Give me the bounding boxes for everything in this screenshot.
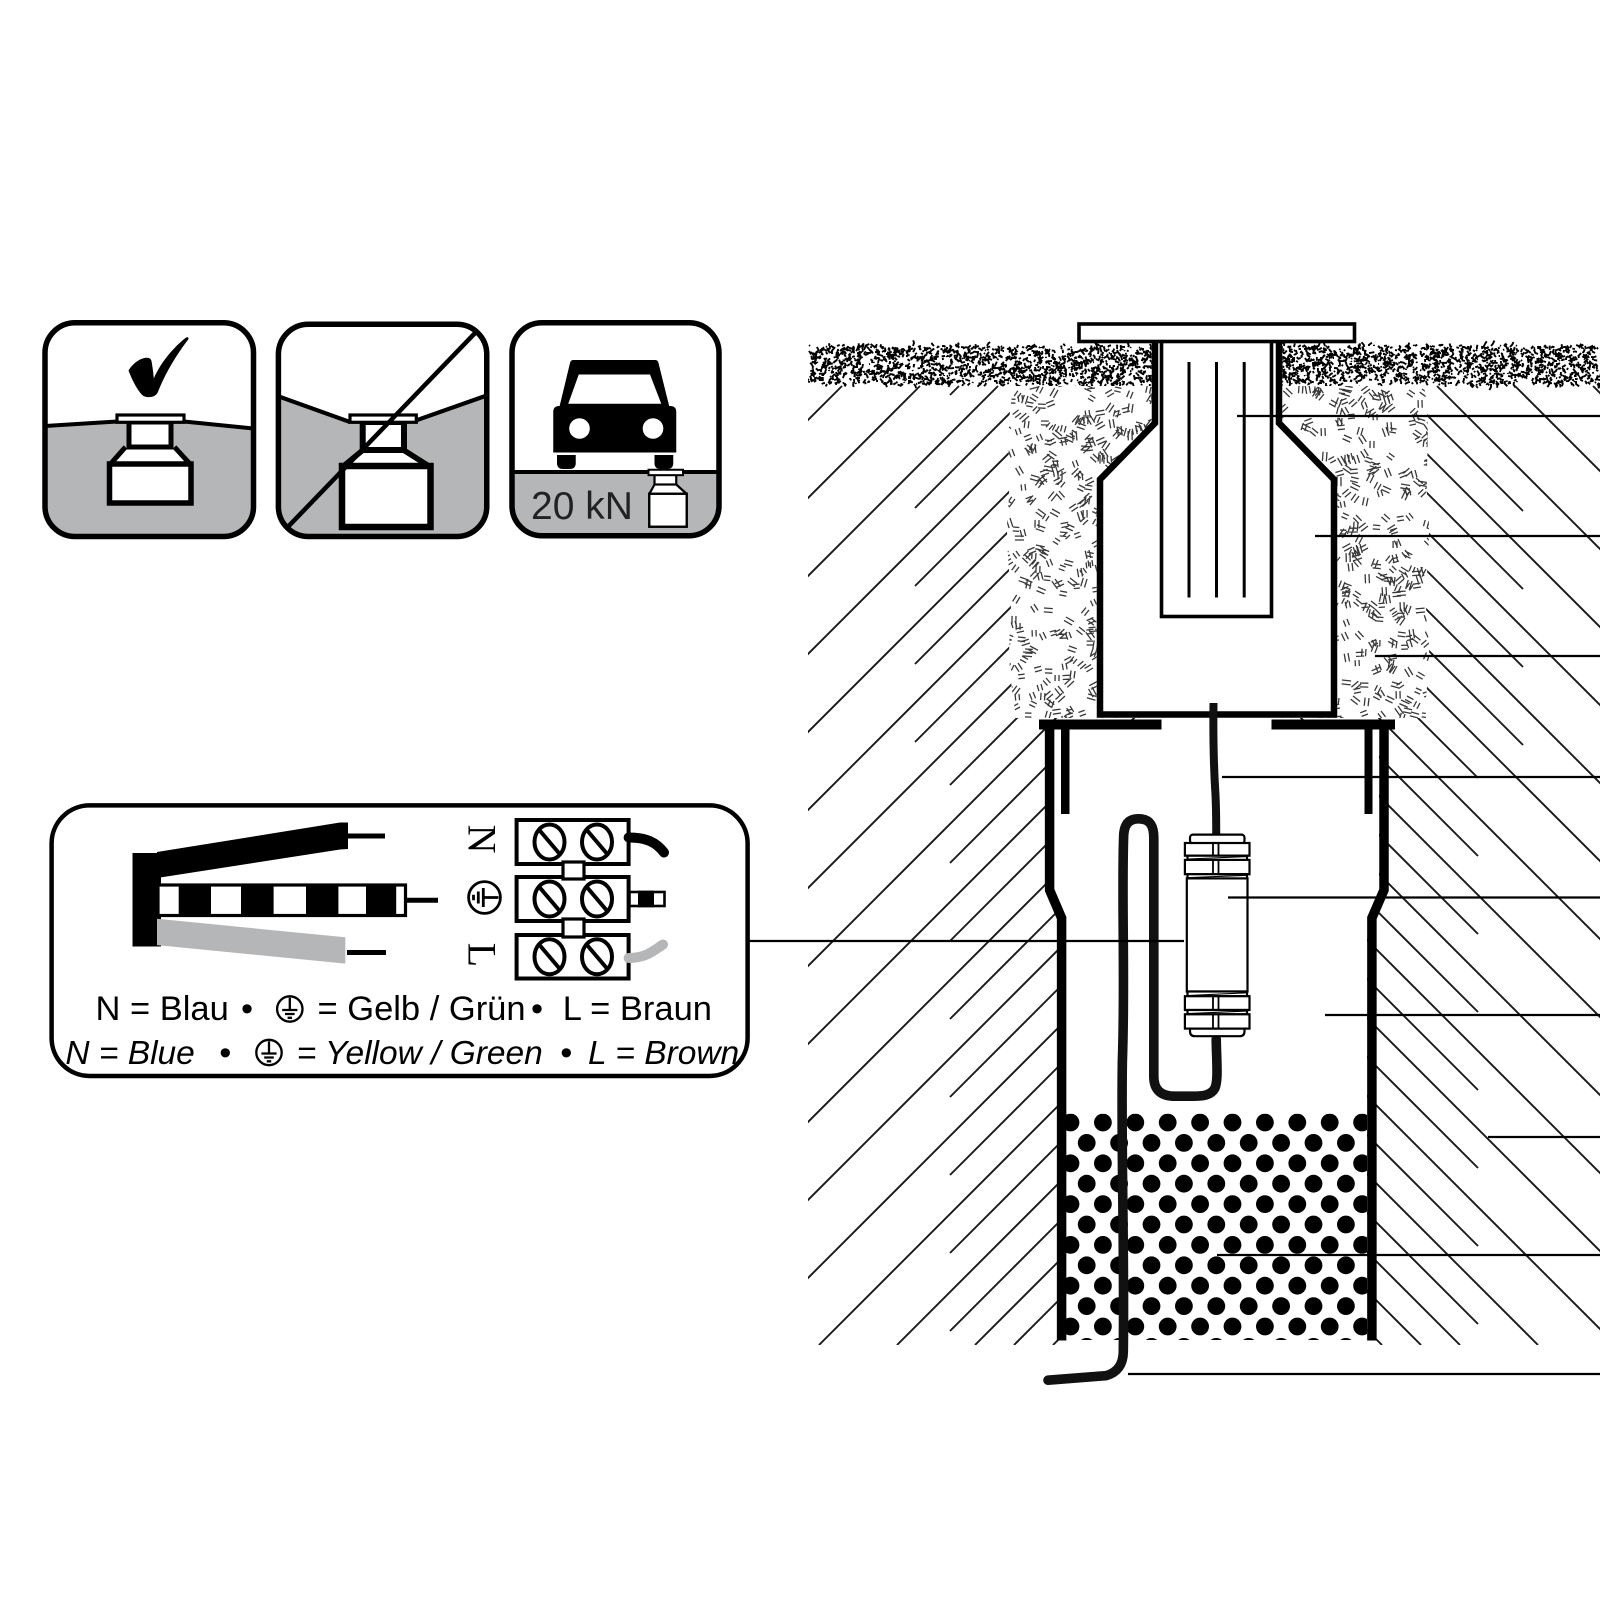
svg-text:= Gelb / Grün: = Gelb / Grün <box>318 990 526 1028</box>
svg-text:L = Braun: L = Braun <box>563 990 712 1028</box>
svg-text:20 kN: 20 kN <box>531 485 633 528</box>
svg-text:•: • <box>560 1034 572 1072</box>
svg-text:•: • <box>241 990 253 1028</box>
svg-text:L: L <box>460 943 505 967</box>
svg-text:L = Brown: L = Brown <box>588 1035 739 1072</box>
svg-text:N: N <box>460 825 505 854</box>
svg-text:•: • <box>531 990 543 1028</box>
svg-text:•: • <box>219 1034 231 1072</box>
svg-text:N = Blau: N = Blau <box>96 990 229 1028</box>
svg-text:= Yellow / Green: = Yellow / Green <box>297 1035 543 1072</box>
svg-text:N = Blue: N = Blue <box>65 1035 194 1072</box>
